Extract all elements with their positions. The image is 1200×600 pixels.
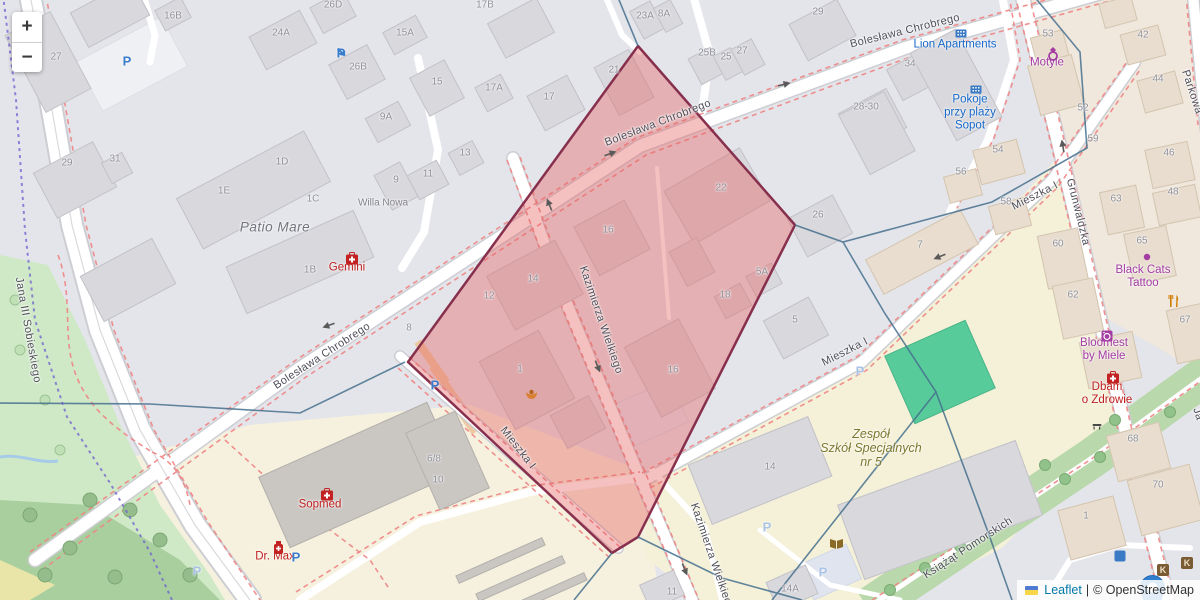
shop-brown-icon[interactable]: K xyxy=(1181,557,1193,569)
map-canvas[interactable]: 16B2724A26D26B15A159A17B17A172123A8A25B2… xyxy=(0,0,1200,600)
attribution-bar: Leaflet | © OpenStreetMap xyxy=(1017,580,1200,600)
parking-icon: P xyxy=(763,521,772,534)
leaflet-link[interactable]: Leaflet xyxy=(1044,583,1082,597)
attribution-separator: | xyxy=(1086,583,1089,597)
parking-icon: P xyxy=(856,365,865,378)
blue-chip-icon[interactable] xyxy=(1115,551,1126,562)
parking-icon: P xyxy=(292,551,301,564)
parking-icon: P xyxy=(123,55,132,68)
parking-entrance-icon[interactable]: P xyxy=(337,47,346,60)
zoom-out-button[interactable]: − xyxy=(12,42,42,72)
zoom-in-button[interactable]: + xyxy=(12,12,42,42)
parking-icon: P xyxy=(431,379,440,392)
icons-layer: PPPPPPPPKK xyxy=(0,0,1200,600)
zoom-control: + − xyxy=(12,12,42,72)
parking-icon: P xyxy=(193,565,202,578)
parking-icon: P xyxy=(819,566,828,579)
osm-link[interactable]: © OpenStreetMap xyxy=(1093,583,1194,597)
ukraine-flag-icon xyxy=(1025,586,1038,595)
